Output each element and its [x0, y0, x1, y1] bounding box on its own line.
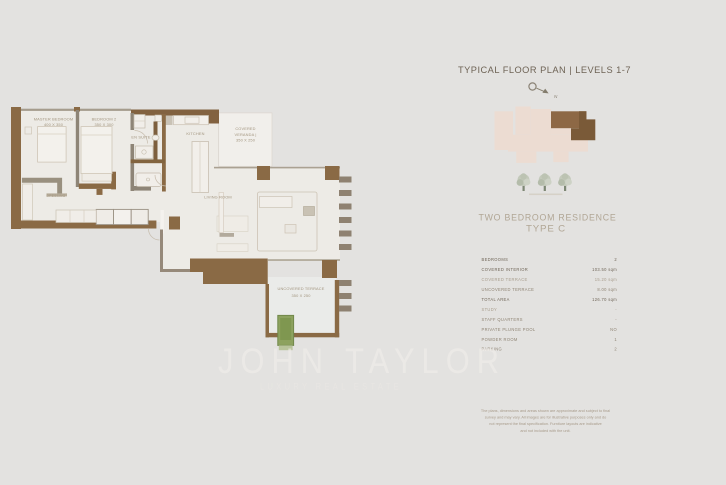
svg-text:TWO BEDROOM RESIDENCE: TWO BEDROOM RESIDENCE [479, 213, 617, 223]
svg-text:DRESSING: DRESSING [47, 194, 66, 198]
svg-text:TYPICAL FLOOR PLAN | LEVELS 1-: TYPICAL FLOOR PLAN | LEVELS 1-7 [458, 65, 631, 76]
svg-text:BEDROOMS: BEDROOMS [482, 257, 509, 262]
svg-text:NO: NO [610, 327, 617, 332]
svg-text:1: 1 [614, 337, 617, 342]
svg-text:2: 2 [614, 347, 617, 352]
svg-text:-: - [615, 317, 617, 322]
svg-text:not represent the final specif: not represent the final specification. F… [489, 422, 602, 426]
svg-text:400 X 350: 400 X 350 [44, 122, 64, 127]
svg-text:and not included with the unit: and not included with the unit. [520, 429, 570, 433]
svg-text:KITCHEN: KITCHEN [186, 131, 204, 136]
svg-text:COVERED TERRACE: COVERED TERRACE [482, 277, 528, 282]
svg-text:126.70 sqm: 126.70 sqm [592, 297, 617, 302]
svg-text:survey and may vary. All image: survey and may vary. All images are for … [485, 416, 607, 420]
svg-text:TYPE C: TYPE C [526, 224, 566, 234]
svg-text:STUDY: STUDY [482, 307, 498, 312]
svg-text:350 X 300: 350 X 300 [94, 122, 114, 127]
svg-text:350 X 250: 350 X 250 [291, 293, 311, 298]
svg-text:PRIVATE PLUNGE POOL: PRIVATE PLUNGE POOL [482, 327, 536, 332]
svg-text:-: - [615, 307, 617, 312]
svg-text:JOHN TAYLOR: JOHN TAYLOR [218, 342, 506, 381]
svg-text:UNCOVERED TERRACE: UNCOVERED TERRACE [482, 287, 535, 292]
svg-text:2: 2 [614, 257, 617, 262]
svg-text:BEDROOM 2: BEDROOM 2 [92, 117, 117, 122]
svg-text:LIVING ROOM: LIVING ROOM [204, 195, 232, 200]
svg-text:MASTER BEDROOM: MASTER BEDROOM [34, 117, 74, 122]
svg-text:EN SUITE: EN SUITE [131, 135, 150, 140]
svg-text:COVERED INTERIOR: COVERED INTERIOR [482, 267, 529, 272]
svg-text:COVERED: COVERED [235, 126, 255, 131]
svg-text:LUXURY REAL ESTATE: LUXURY REAL ESTATE [260, 382, 402, 392]
svg-text:The plans, dimensions and area: The plans, dimensions and areas shown ar… [481, 409, 610, 413]
svg-text:UNCOVERED TERRACE: UNCOVERED TERRACE [277, 286, 324, 291]
svg-text:VERANDA |: VERANDA | [234, 132, 256, 137]
svg-text:STAFF QUARTERS: STAFF QUARTERS [482, 317, 523, 322]
svg-text:103.50 sqm: 103.50 sqm [592, 267, 617, 272]
svg-text:8.00 sqm: 8.00 sqm [597, 287, 617, 292]
svg-text:15.20 sqm: 15.20 sqm [595, 277, 618, 282]
svg-text:350 X 250: 350 X 250 [236, 138, 256, 143]
svg-text:TOTAL AREA: TOTAL AREA [482, 297, 510, 302]
